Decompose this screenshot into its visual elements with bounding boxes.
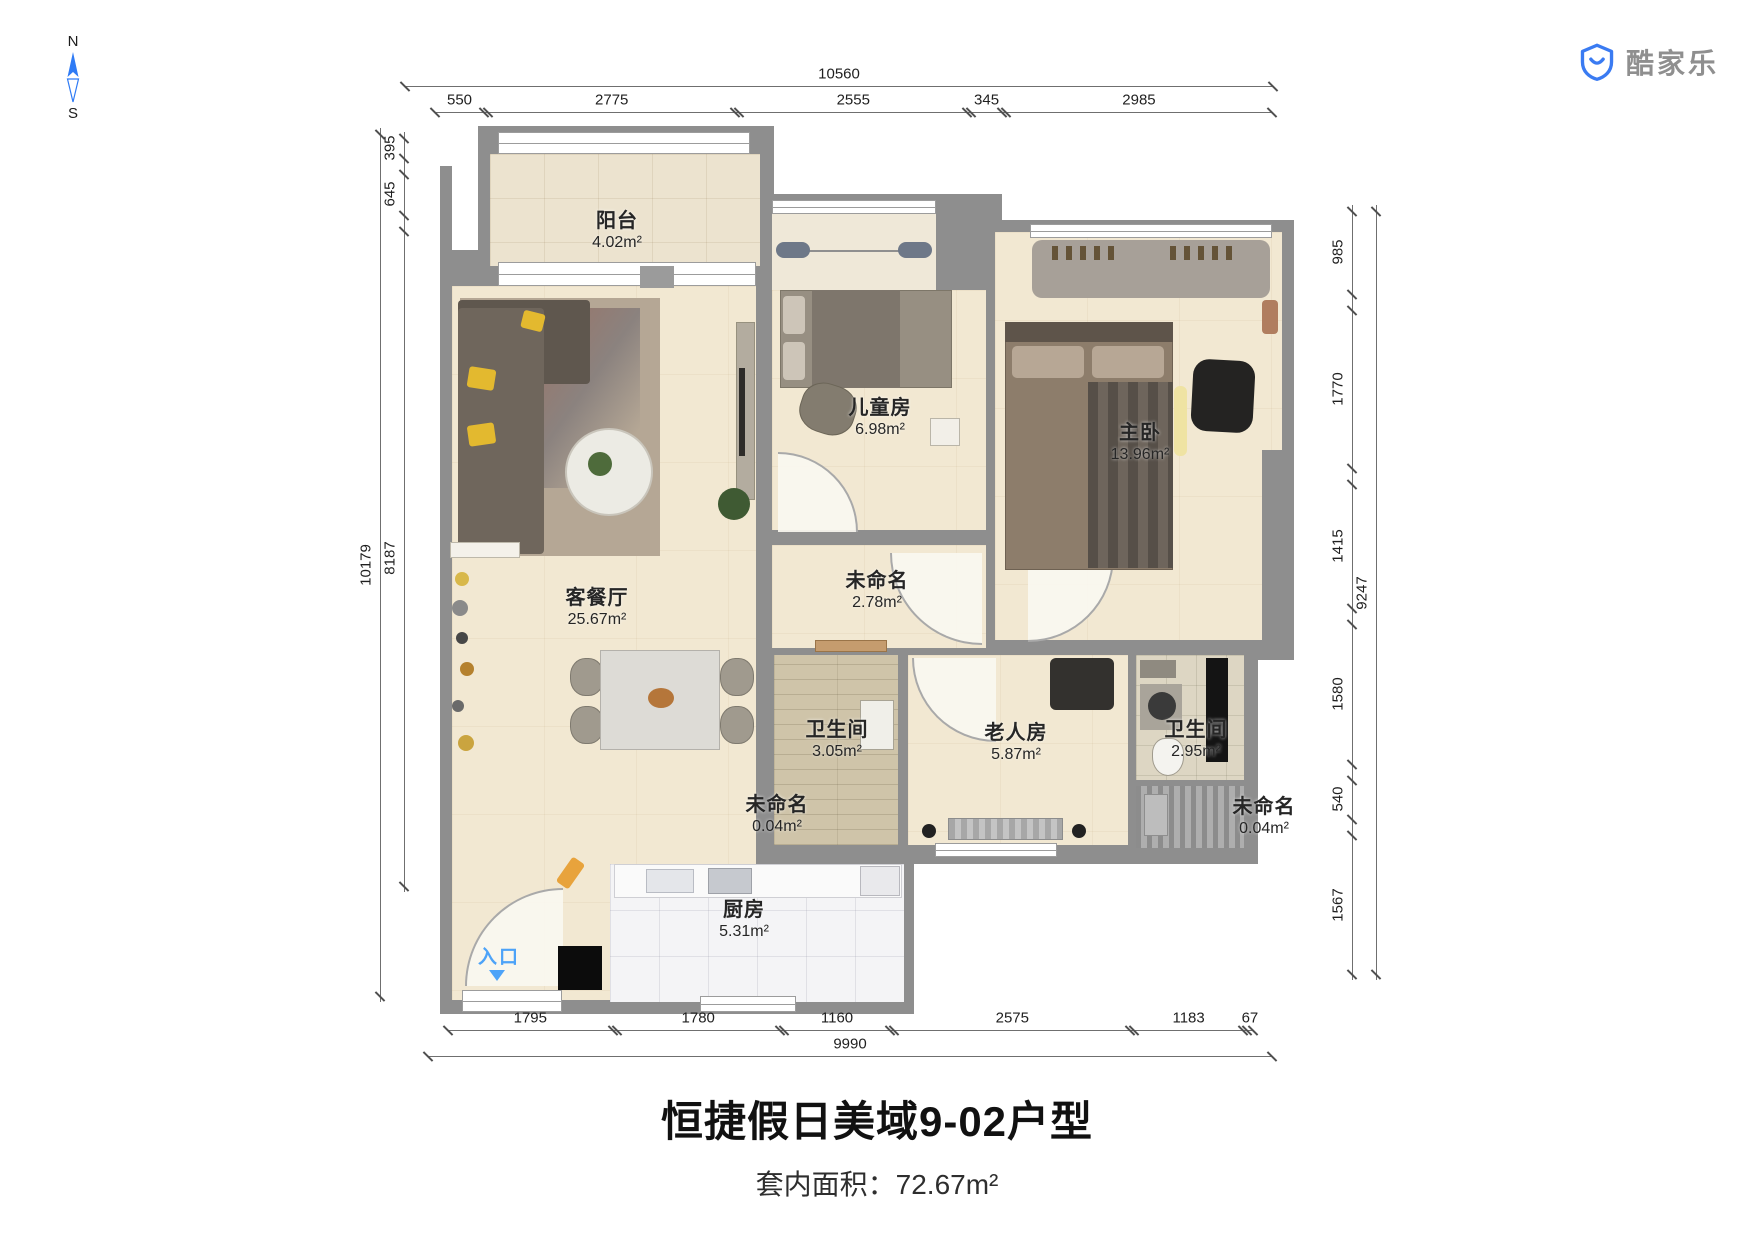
room-label-bath2: 卫生间 2.95m² [1165, 713, 1228, 761]
subtitle-unit: m² [966, 1169, 999, 1200]
compass-needle-icon [64, 52, 82, 104]
brand-logo: 酷家乐 [1578, 42, 1719, 82]
dimension-label: 985 [1330, 240, 1347, 265]
entrance-threshold [462, 990, 562, 1012]
decor-item [452, 700, 464, 712]
dimension-label: 9990 [833, 1036, 866, 1053]
dimension-label: 1415 [1330, 529, 1347, 562]
dimension-label: 9247 [1354, 576, 1371, 609]
dimension-label: 1160 [821, 1010, 853, 1027]
dimension-label: 1567 [1330, 888, 1347, 921]
dining-chair [720, 658, 754, 696]
entrance-label: 入口 [478, 942, 520, 969]
subtitle-value: 72.67 [896, 1169, 966, 1200]
ac-unit [1144, 794, 1168, 836]
window-balcony-top [498, 132, 750, 154]
console-table [450, 542, 520, 558]
dining-chair [570, 706, 604, 744]
decor-item [460, 662, 474, 676]
room-label-niche-left: 未命名 0.04m² [746, 788, 809, 836]
master-headboard [1005, 322, 1173, 342]
window-elder-bottom [935, 843, 1057, 857]
decor-item [1072, 824, 1086, 838]
dimension-label: 1183 [1172, 1010, 1204, 1027]
kitchen-stove [708, 868, 752, 894]
master-bed-runner [1088, 382, 1173, 568]
dimension-label: 1780 [682, 1010, 715, 1027]
dimension-label: 395 [382, 136, 399, 161]
sofa-cushion [467, 366, 497, 391]
kids-desk [930, 418, 960, 446]
window-kids-bay [772, 200, 936, 214]
dimension-label: 645 [382, 182, 399, 207]
window-master-top [1030, 224, 1272, 238]
curtain-bunch [776, 242, 810, 258]
master-pouf [1190, 358, 1256, 433]
sofa-cushion [467, 422, 497, 447]
floor-plan: 阳台 4.02m² 儿童房 6.98m² 主卧 13.96m² 客餐厅 25.6… [0, 0, 1754, 1240]
kitchen-appliance [860, 866, 900, 896]
plan-title: 恒捷假日美域9-02户型 [661, 1088, 1093, 1149]
room-label-hall: 未命名 2.78m² [846, 564, 909, 612]
bath2-shelf [1140, 660, 1176, 678]
dimension-label: 2575 [996, 1010, 1029, 1027]
decor-item [922, 824, 936, 838]
decor-item [455, 572, 469, 586]
kids-bed-blanket [812, 290, 900, 388]
elder-radiator [948, 818, 1063, 840]
dimension-label: 10179 [358, 544, 375, 586]
subtitle-label: 套内面积： [756, 1169, 896, 1200]
dimension-label: 10560 [818, 66, 860, 83]
room-label-balcony: 阳台 4.02m² [592, 204, 642, 252]
master-pillow [1012, 346, 1084, 378]
kitchen-sink [646, 869, 694, 893]
compass-north-label: N [52, 34, 94, 50]
room-label-bath1: 卫生间 3.05m² [806, 713, 869, 761]
decor-item [452, 600, 468, 616]
balcony-unit [640, 266, 674, 288]
dimension-line [405, 86, 1273, 87]
dimension-label: 1580 [1330, 677, 1347, 710]
window-balcony-inner [498, 262, 756, 286]
master-bolster [1174, 386, 1187, 456]
room-label-elder: 老人房 5.87m² [985, 716, 1048, 764]
room-label-niche-right: 未命名 0.04m² [1233, 790, 1296, 838]
dimension-label: 540 [1330, 787, 1347, 812]
kids-pillow [783, 296, 805, 334]
dimension-label: 2775 [595, 92, 628, 109]
dining-centerpiece [648, 688, 674, 708]
brand-name: 酷家乐 [1626, 42, 1719, 82]
room-label-living: 客餐厅 25.67m² [566, 581, 629, 629]
compass-south-label: S [52, 106, 94, 122]
dimension-label: 67 [1242, 1010, 1259, 1027]
room-label-master: 主卧 13.96m² [1111, 416, 1170, 464]
dimension-label: 8187 [382, 542, 399, 575]
dimension-line [428, 1056, 1272, 1057]
wood-stool [1262, 300, 1278, 334]
dimension-label: 550 [447, 92, 472, 109]
dining-chair [720, 706, 754, 744]
dimension-line [435, 112, 1272, 113]
decor-item [458, 735, 474, 751]
decor-item [456, 632, 468, 644]
dimension-line [404, 132, 405, 892]
shoe-cabinet [558, 946, 602, 990]
kujiale-shield-icon [1578, 43, 1616, 81]
sliding-door-bath1 [815, 640, 887, 652]
room-label-kids: 儿童房 6.98m² [849, 391, 912, 439]
room-label-kitchen: 厨房 5.31m² [719, 893, 769, 941]
dimension-line [1376, 205, 1377, 980]
tv-screen [739, 368, 745, 456]
coffee-table [565, 428, 653, 516]
kids-pillow [783, 342, 805, 380]
wall-notch-master [1262, 450, 1294, 648]
dimension-label: 1770 [1330, 372, 1347, 405]
entrance-arrow-icon [489, 970, 505, 981]
curtain-bunch [898, 242, 932, 258]
curtain-plants [1052, 246, 1122, 260]
dimension-label: 2555 [837, 92, 870, 109]
dining-chair [570, 658, 604, 696]
dimension-label: 2985 [1122, 92, 1155, 109]
curtain-plants [1170, 246, 1240, 260]
floor-plant [718, 488, 750, 520]
plan-subtitle: 套内面积：72.67m² [756, 1163, 999, 1203]
elder-wardrobe [1050, 658, 1114, 710]
compass: N S [52, 34, 94, 122]
coffee-table-plant [588, 452, 612, 476]
floorplan-page: { "brand": { "name": "酷家乐" }, "compass":… [0, 0, 1754, 1240]
master-pillow [1092, 346, 1164, 378]
dimension-label: 1795 [514, 1010, 547, 1027]
dimension-label: 345 [974, 92, 999, 109]
